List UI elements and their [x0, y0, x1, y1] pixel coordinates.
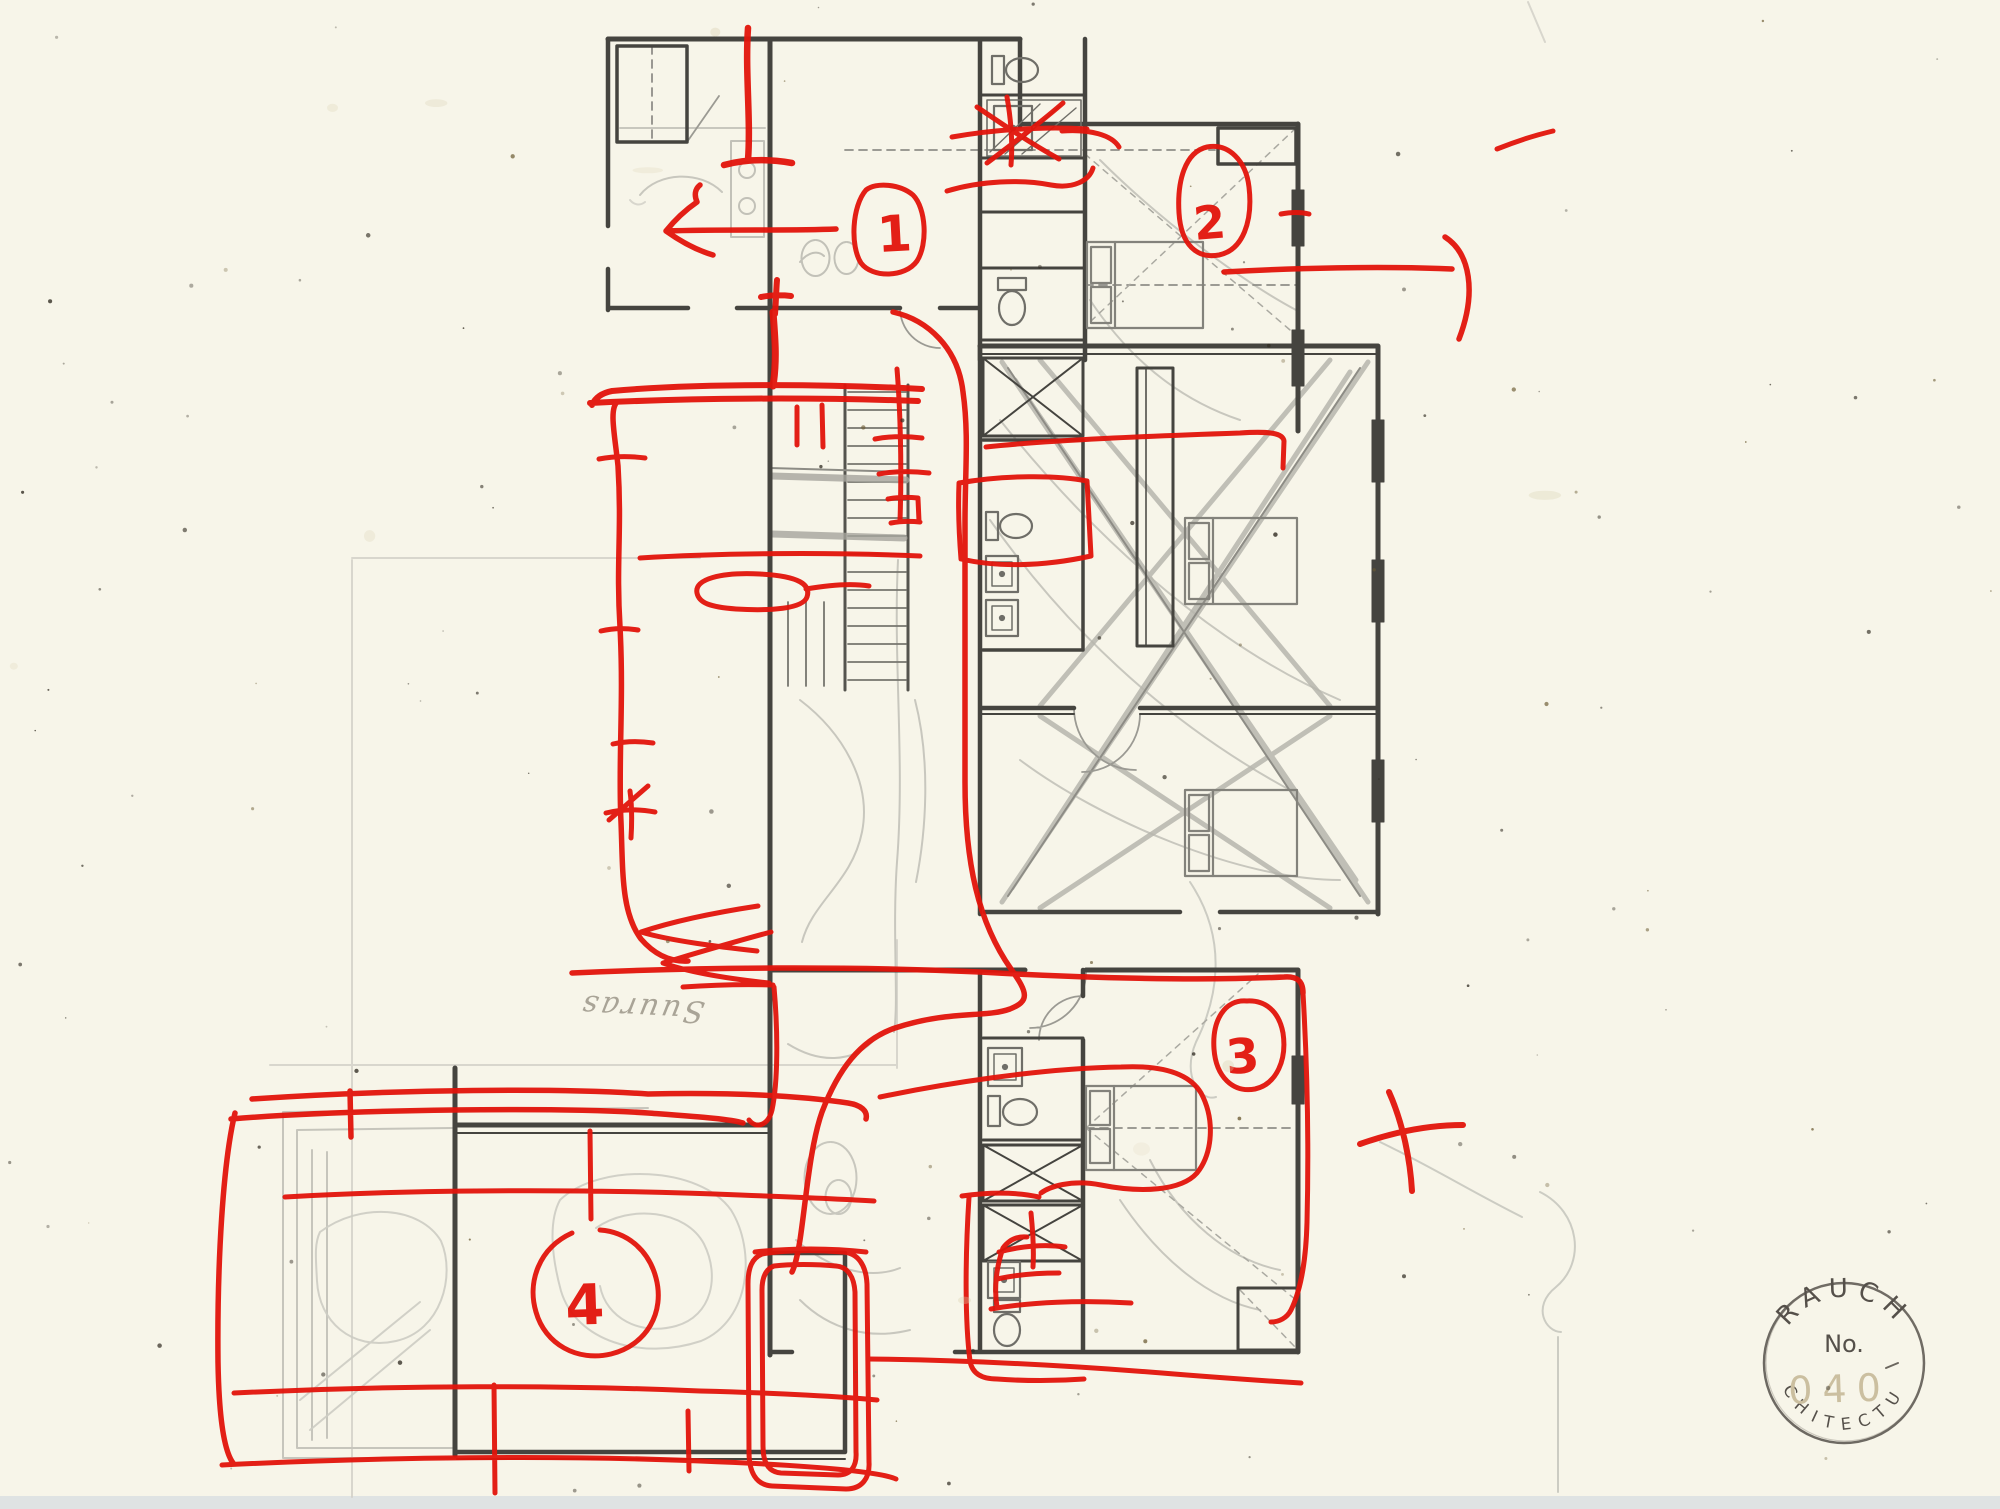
- paper-background: [0, 0, 2000, 1509]
- red-wall-tick-right: [1281, 213, 1309, 215]
- stamp-number-label: No.: [1824, 1330, 1864, 1358]
- window-sill-2: [1292, 330, 1304, 386]
- sketch-canvas: Suuras 1 2 3: [0, 0, 2000, 1509]
- stamp-number-value: 040: [1788, 1365, 1892, 1413]
- pencil-note: Suuras: [576, 988, 707, 1029]
- scan-edge-strip: [0, 1496, 2000, 1509]
- window-sill-6: [1292, 1056, 1304, 1104]
- room-number-3: 3: [1224, 1028, 1261, 1086]
- room-number-4: 4: [564, 1273, 605, 1339]
- scanned-sketch-page: Suuras 1 2 3: [0, 0, 2000, 1509]
- room-number-1: 1: [876, 204, 914, 264]
- window-sill-1: [1292, 190, 1304, 246]
- window-sill-5: [1372, 760, 1384, 822]
- room-number-2: 2: [1191, 194, 1228, 251]
- window-sill-3: [1372, 420, 1384, 482]
- red-feeder-stroke: [773, 312, 775, 386]
